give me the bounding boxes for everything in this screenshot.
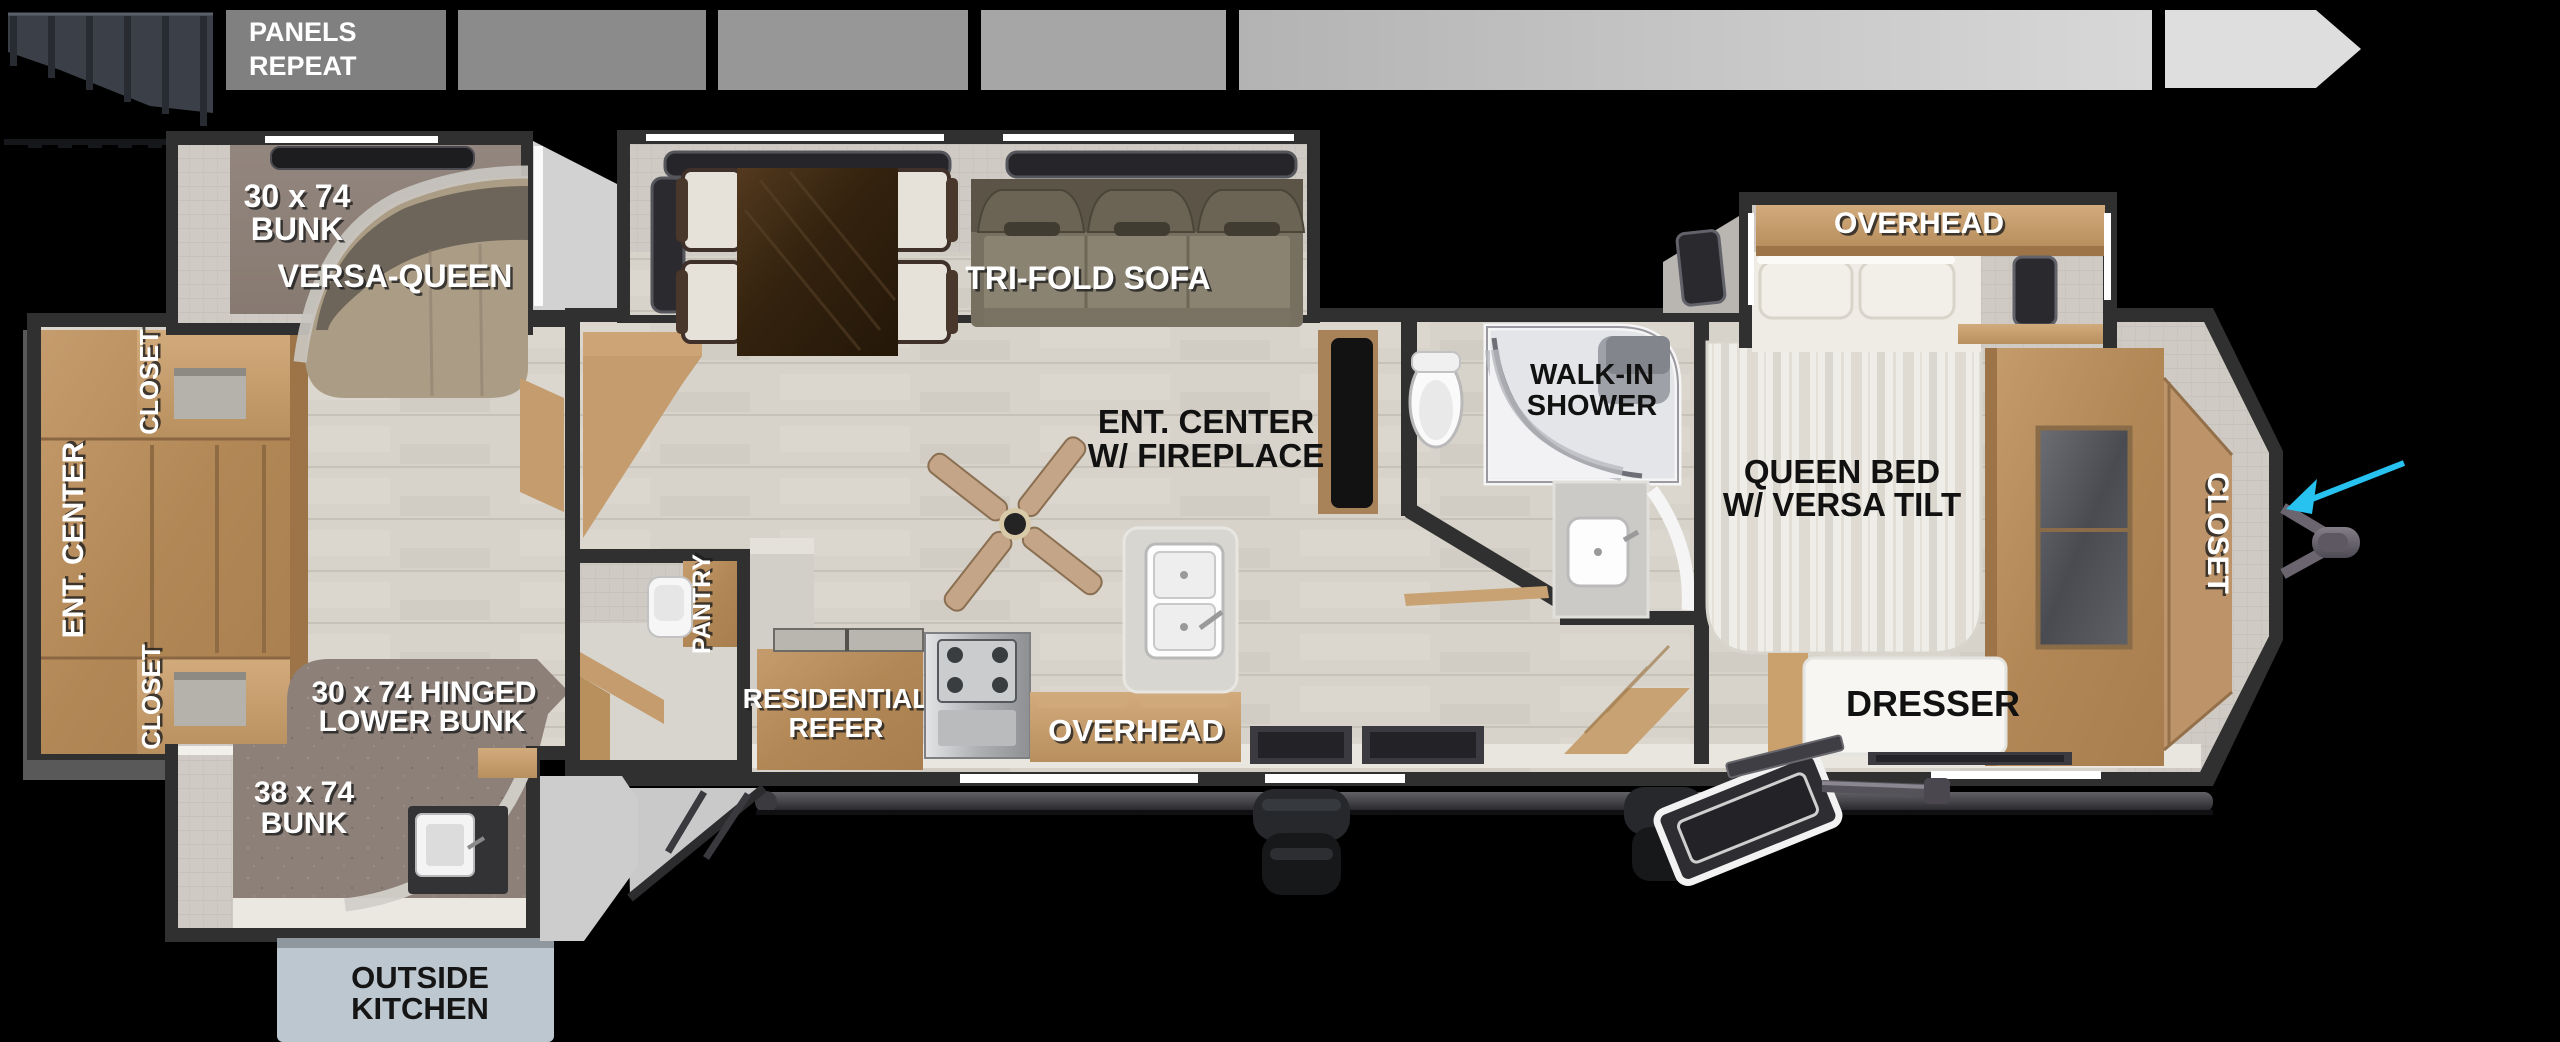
svg-text:OUTSIDE: OUTSIDE <box>351 960 489 995</box>
svg-text:BUNK: BUNK <box>261 807 348 840</box>
svg-text:DRESSER: DRESSER <box>1846 683 2020 724</box>
svg-text:W/ VERSA TILT: W/ VERSA TILT <box>1723 486 1961 523</box>
svg-text:RESIDENTIAL: RESIDENTIAL <box>743 683 930 714</box>
svg-text:38 x 74: 38 x 74 <box>254 776 354 809</box>
svg-text:OVERHEAD: OVERHEAD <box>1048 713 1224 748</box>
svg-text:OVERHEAD: OVERHEAD <box>1834 207 2004 240</box>
svg-text:30 x 74: 30 x 74 <box>244 178 351 214</box>
svg-text:CLOSET: CLOSET <box>134 329 164 435</box>
svg-text:CLOSET: CLOSET <box>136 644 166 750</box>
svg-text:KITCHEN: KITCHEN <box>351 991 489 1026</box>
svg-text:ENT. CENTER: ENT. CENTER <box>57 441 90 638</box>
svg-text:WALK-IN: WALK-IN <box>1530 359 1654 391</box>
svg-text:PANELS: PANELS <box>249 17 357 47</box>
svg-text:ENT. CENTER: ENT. CENTER <box>1098 403 1315 440</box>
svg-text:LOWER BUNK: LOWER BUNK <box>319 705 526 738</box>
svg-text:BUNK: BUNK <box>251 211 343 247</box>
svg-text:REFER: REFER <box>789 712 884 743</box>
svg-text:TRI-FOLD SOFA: TRI-FOLD SOFA <box>965 260 1210 296</box>
svg-text:REPEAT: REPEAT <box>249 51 357 81</box>
svg-text:W/ FIREPLACE: W/ FIREPLACE <box>1088 437 1325 474</box>
svg-text:CLOSET: CLOSET <box>2201 472 2234 594</box>
svg-text:SHOWER: SHOWER <box>1527 390 1658 422</box>
svg-text:VERSA-QUEEN: VERSA-QUEEN <box>278 258 513 294</box>
svg-text:QUEEN BED: QUEEN BED <box>1744 453 1940 490</box>
